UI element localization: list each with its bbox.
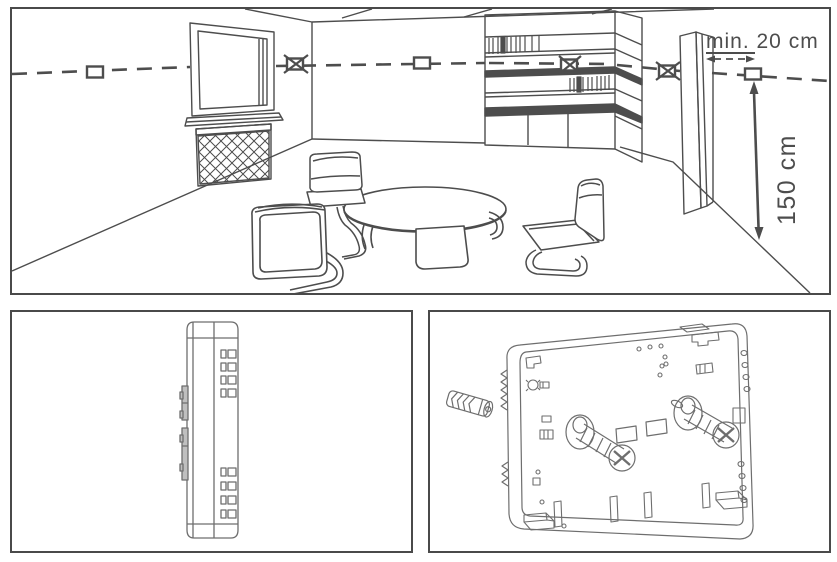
arrowhead-right-icon <box>746 56 755 63</box>
device-body-outline <box>187 322 238 538</box>
shelf-unit <box>485 11 642 162</box>
room-structure <box>12 9 810 293</box>
room-illustration: min. 20 cm 150 cm <box>12 9 829 293</box>
vent-slots-top <box>221 350 236 397</box>
mounting-height-annotation: 150 cm <box>750 81 802 240</box>
device-side-view <box>12 312 411 551</box>
panel-back-plate <box>428 310 831 553</box>
arrowhead-down-icon <box>755 227 764 240</box>
prohibited-position-marker <box>284 55 308 73</box>
min-distance-annotation: min. 20 cm <box>706 30 819 63</box>
allowed-position-marker <box>87 67 103 78</box>
allowed-position-marker <box>414 58 430 69</box>
prohibited-position-marker <box>559 56 581 74</box>
arrowhead-left-icon <box>706 56 715 63</box>
round-table <box>344 187 506 269</box>
height-arrow-line <box>754 92 759 227</box>
mounting-height-label: 150 cm <box>773 134 801 225</box>
radiator <box>196 124 271 186</box>
manual-figure: min. 20 cm 150 cm <box>0 0 837 562</box>
cable-openings <box>616 419 667 443</box>
mounting-clips <box>180 386 188 480</box>
wall-anchor <box>446 390 495 418</box>
chair-right <box>523 179 604 276</box>
allowed-position-marker <box>745 69 761 80</box>
arrowhead-up-icon <box>750 81 759 94</box>
panel-device-side-view <box>10 310 413 553</box>
mounting-screw-right <box>684 405 739 448</box>
books-row-top <box>489 35 539 54</box>
min-distance-label: min. 20 cm <box>706 30 819 53</box>
panel-room-placement: min. 20 cm 150 cm <box>10 7 831 295</box>
vent-slots-bottom <box>221 468 236 518</box>
device-back-plate <box>430 312 829 551</box>
window <box>185 23 283 126</box>
chair-front-left <box>252 204 343 293</box>
